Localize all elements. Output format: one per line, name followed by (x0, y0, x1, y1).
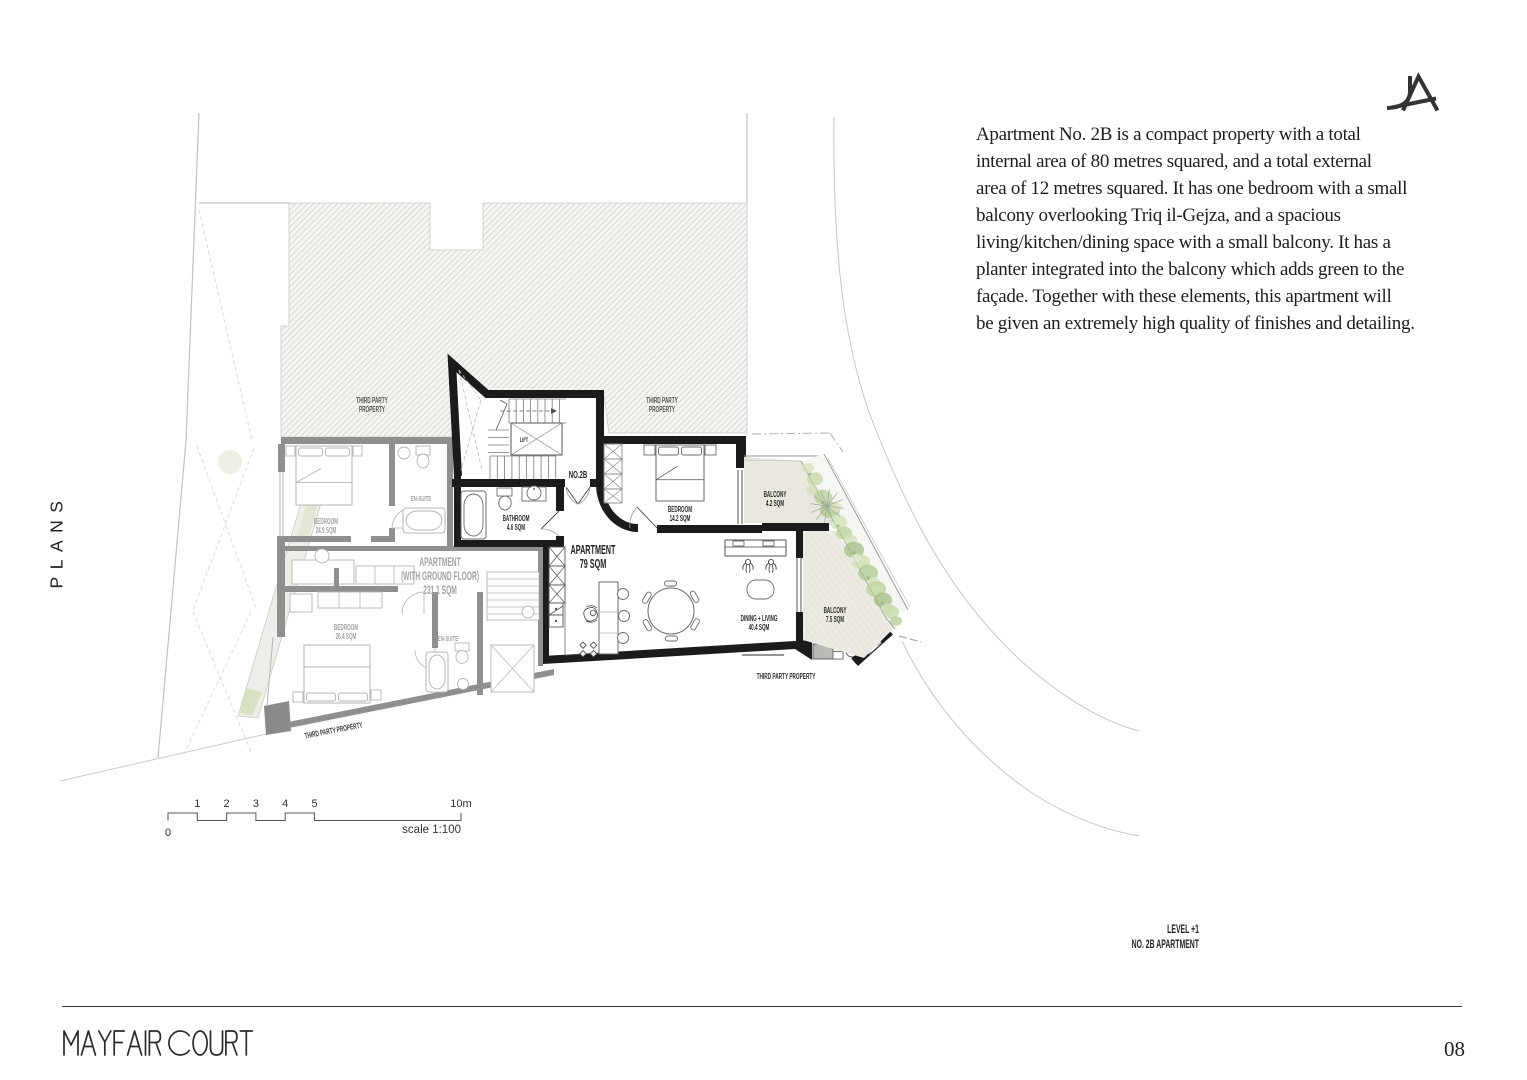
svg-text:EN-SUITE: EN-SUITE (411, 495, 431, 504)
svg-text:(WITH GROUND FLOOR): (WITH GROUND FLOOR) (401, 569, 479, 582)
svg-text:LEVEL +1: LEVEL +1 (1167, 923, 1199, 936)
svg-text:1: 1 (194, 798, 200, 810)
svg-text:BEDROOM: BEDROOM (668, 506, 692, 515)
svg-text:BEDROOM: BEDROOM (334, 624, 358, 633)
svg-text:79 SQM: 79 SQM (580, 558, 607, 571)
svg-text:3: 3 (253, 798, 259, 810)
svg-text:APARTMENT: APARTMENT (419, 555, 461, 568)
svg-text:231.1 SQM: 231.1 SQM (423, 583, 457, 596)
svg-text:PROPERTY: PROPERTY (359, 406, 385, 415)
svg-text:THIRD PARTY: THIRD PARTY (356, 397, 388, 406)
svg-text:THIRD PARTY PROPERTY: THIRD PARTY PROPERTY (304, 721, 364, 741)
svg-text:BALCONY: BALCONY (764, 491, 787, 500)
svg-text:7.5 SQM: 7.5 SQM (826, 616, 844, 625)
svg-text:4.6 SQM: 4.6 SQM (507, 524, 525, 533)
svg-text:2: 2 (224, 798, 230, 810)
svg-text:EN-SUITE: EN-SUITE (438, 635, 458, 644)
svg-text:26.4 SQM: 26.4 SQM (336, 633, 357, 642)
svg-text:4: 4 (282, 798, 288, 810)
svg-text:24.9 SQM: 24.9 SQM (316, 527, 337, 536)
svg-text:THIRD PARTY PROPERTY: THIRD PARTY PROPERTY (757, 673, 816, 682)
svg-text:LIFT: LIFT (520, 437, 529, 444)
svg-text:PROPERTY: PROPERTY (649, 406, 675, 415)
svg-text:BATHROOM: BATHROOM (503, 515, 530, 524)
svg-text:NO. 2B APARTMENT: NO. 2B APARTMENT (1132, 938, 1200, 951)
svg-text:THIRD PARTY: THIRD PARTY (646, 397, 678, 406)
svg-text:0: 0 (165, 827, 171, 839)
svg-text:14.2 SQM: 14.2 SQM (670, 515, 691, 524)
svg-text:5: 5 (311, 798, 317, 810)
svg-text:NO.2B: NO.2B (569, 468, 588, 480)
svg-text:40.4 SQM: 40.4 SQM (749, 624, 770, 633)
svg-text:BEDROOM: BEDROOM (314, 518, 338, 527)
svg-text:scale 1:100: scale 1:100 (402, 824, 461, 836)
svg-text:10m: 10m (450, 798, 471, 810)
svg-text:DINING + LIVING: DINING + LIVING (741, 615, 778, 624)
svg-text:4.2 SQM: 4.2 SQM (766, 500, 784, 509)
svg-text:BALCONY: BALCONY (824, 607, 847, 616)
svg-text:APARTMENT: APARTMENT (571, 544, 616, 557)
